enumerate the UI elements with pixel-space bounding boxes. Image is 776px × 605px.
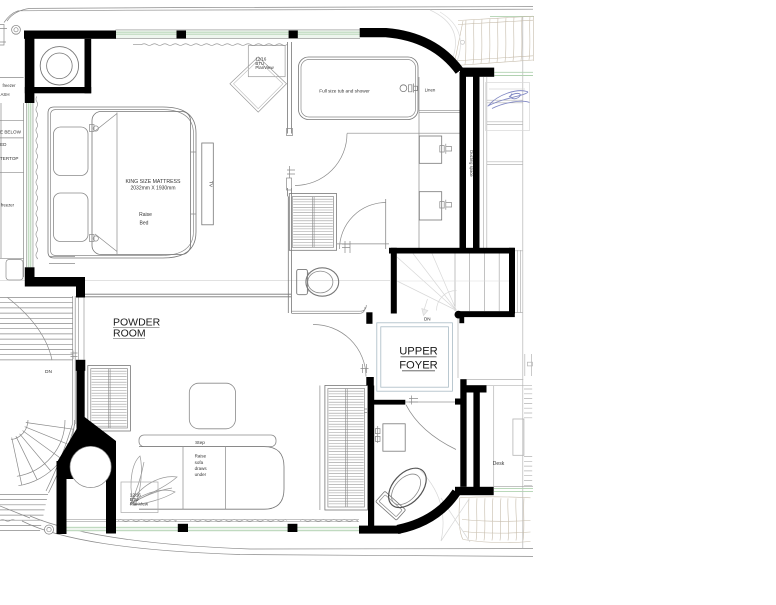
- svg-text:KING SIZE MATTRESS: KING SIZE MATTRESS: [126, 179, 181, 185]
- svg-text:Step: Step: [195, 440, 205, 446]
- svg-text:Raise: Raise: [139, 212, 152, 218]
- svg-text:ED: ED: [0, 142, 7, 147]
- svg-text:freezer: freezer: [1, 203, 15, 208]
- svg-text:TV: TV: [208, 181, 214, 188]
- svg-text:DN: DN: [45, 369, 52, 375]
- svg-text:freezer: freezer: [3, 83, 17, 88]
- svg-text:ASH: ASH: [1, 92, 10, 97]
- svg-text:2032mm X 1930mm: 2032mm X 1930mm: [130, 186, 175, 192]
- svg-text:under: under: [195, 472, 207, 477]
- svg-text:Raise: Raise: [195, 454, 207, 459]
- svg-text:sofa: sofa: [195, 460, 204, 465]
- svg-text:UPPER: UPPER: [399, 346, 438, 358]
- svg-text:Bed: Bed: [140, 220, 149, 226]
- svg-text:ROOM: ROOM: [113, 328, 146, 340]
- svg-text:PlanView: PlanView: [255, 65, 274, 70]
- svg-text:Linen: Linen: [425, 87, 436, 92]
- svg-text:E BELOW: E BELOW: [0, 130, 22, 135]
- svg-text:TERTOP: TERTOP: [0, 156, 18, 161]
- svg-text:draws: draws: [195, 466, 208, 471]
- svg-text:PlanView: PlanView: [130, 502, 149, 507]
- svg-text:Desk: Desk: [493, 461, 505, 467]
- svg-text:FOYER: FOYER: [399, 360, 438, 372]
- svg-text:Full size tub and shower: Full size tub and shower: [319, 89, 370, 94]
- svg-text:DN: DN: [424, 317, 431, 322]
- svg-text:POWDER: POWDER: [113, 316, 161, 328]
